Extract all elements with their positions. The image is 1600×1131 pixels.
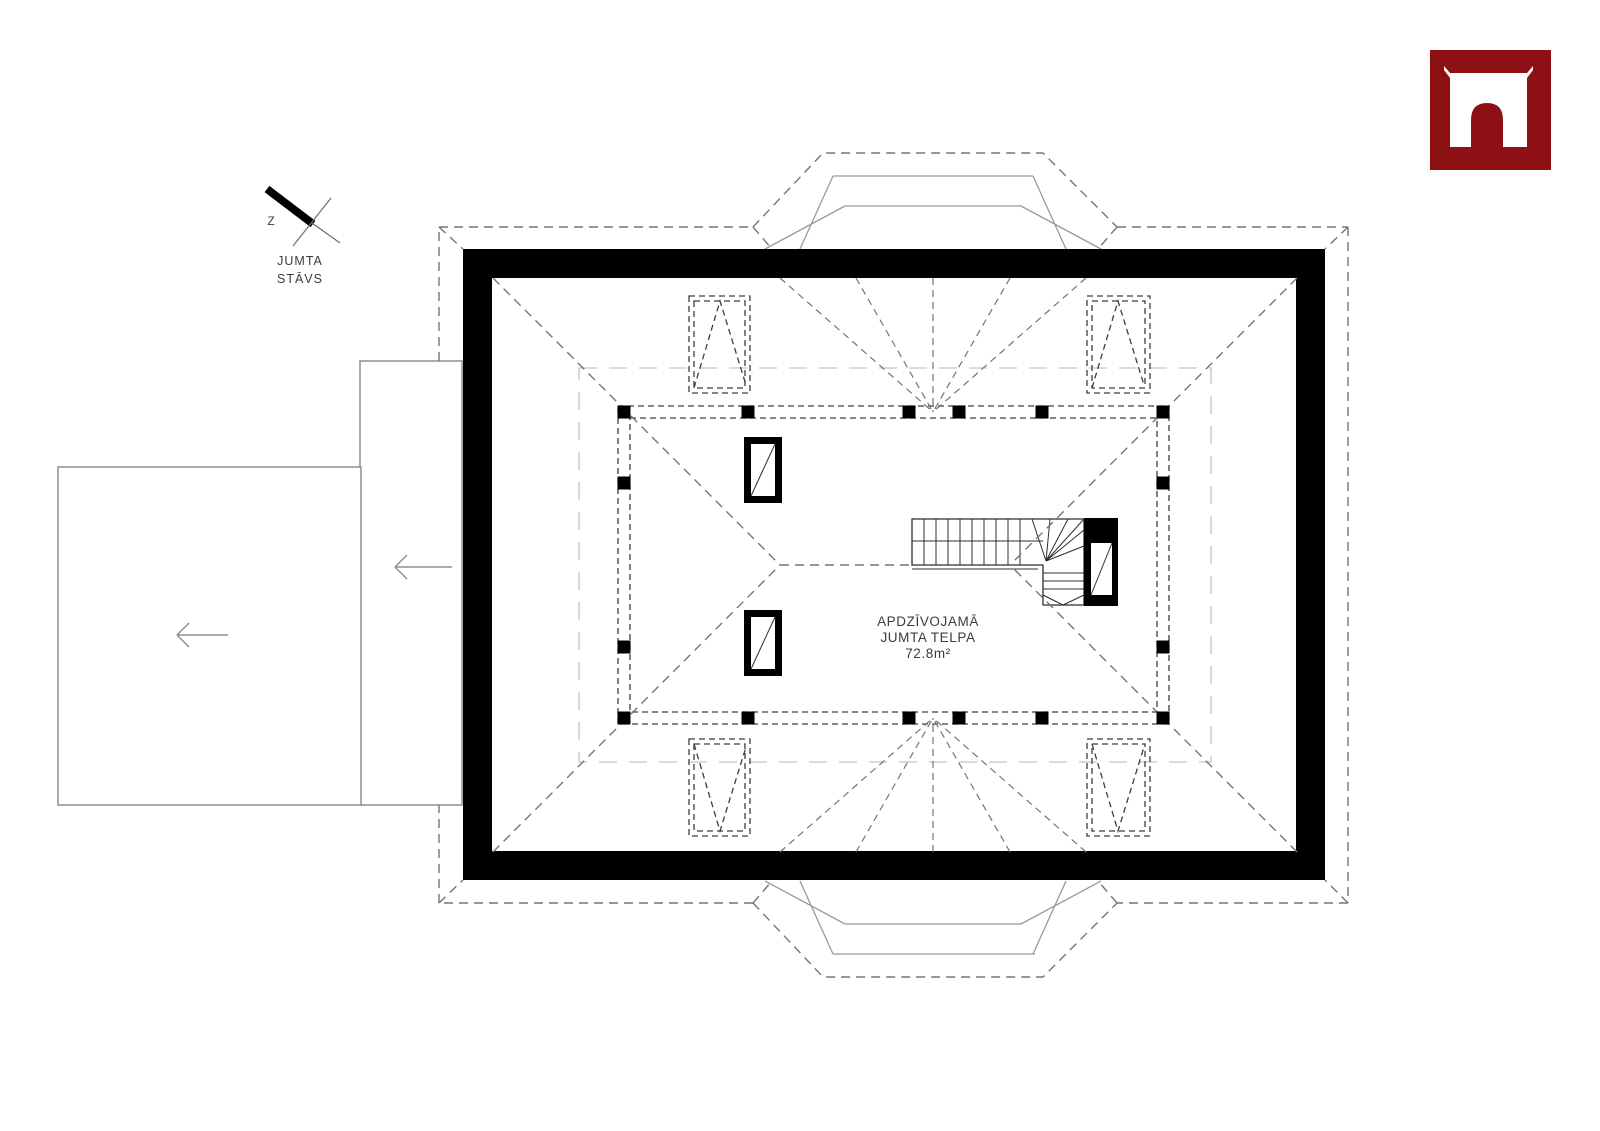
garage-roof-outline bbox=[58, 467, 361, 805]
post bbox=[953, 406, 966, 419]
garage-roof bbox=[58, 467, 361, 805]
north-label: Z bbox=[267, 214, 274, 228]
post bbox=[1036, 712, 1049, 725]
brand-logo-icon bbox=[1430, 50, 1551, 170]
room-area-value: 72.8m² bbox=[905, 646, 951, 661]
post bbox=[618, 641, 631, 654]
post bbox=[742, 712, 755, 725]
post bbox=[903, 712, 916, 725]
hip-line bbox=[1010, 565, 1297, 852]
post bbox=[903, 406, 916, 419]
skylight-top-left bbox=[689, 296, 750, 393]
porch-roof-outline bbox=[360, 361, 462, 805]
post bbox=[953, 712, 966, 725]
roof-plan-canvas: Z JUMTA STĀVS APDZĪVOJAMĀ JUMTA TELPA 72… bbox=[0, 0, 1600, 1131]
room-name-line1: APDZĪVOJAMĀ bbox=[877, 614, 979, 629]
post bbox=[1157, 712, 1170, 725]
post bbox=[618, 477, 631, 490]
post bbox=[1157, 406, 1170, 419]
north-arrow-icon bbox=[267, 189, 340, 246]
post bbox=[618, 406, 631, 419]
porch-roof bbox=[360, 361, 462, 805]
floor-title-line2: STĀVS bbox=[277, 272, 323, 286]
staircase bbox=[912, 519, 1084, 605]
hip-line bbox=[493, 278, 780, 565]
chimney bbox=[1084, 518, 1118, 606]
bottom-dormer bbox=[753, 881, 1117, 977]
post bbox=[1157, 477, 1170, 490]
roof-window-lower bbox=[744, 610, 782, 676]
post bbox=[1157, 641, 1170, 654]
post bbox=[618, 712, 631, 725]
roof-plan-sheet: Z JUMTA STĀVS APDZĪVOJAMĀ JUMTA TELPA 72… bbox=[0, 0, 1600, 1131]
skylight-top-right bbox=[1087, 296, 1150, 393]
floor-title: JUMTA STĀVS bbox=[277, 254, 323, 286]
skylight-bottom-left bbox=[689, 739, 750, 836]
top-dormer bbox=[753, 153, 1117, 249]
room-label: APDZĪVOJAMĀ JUMTA TELPA 72.8m² bbox=[877, 614, 979, 661]
floor-title-line1: JUMTA bbox=[277, 254, 323, 268]
roof-window-upper bbox=[744, 437, 782, 503]
post bbox=[742, 406, 755, 419]
hip-line bbox=[493, 565, 780, 852]
room-name-line2: JUMTA TELPA bbox=[880, 630, 975, 645]
post bbox=[1036, 406, 1049, 419]
roof-hip-lines bbox=[493, 278, 1297, 852]
skylight-bottom-right bbox=[1087, 739, 1150, 836]
